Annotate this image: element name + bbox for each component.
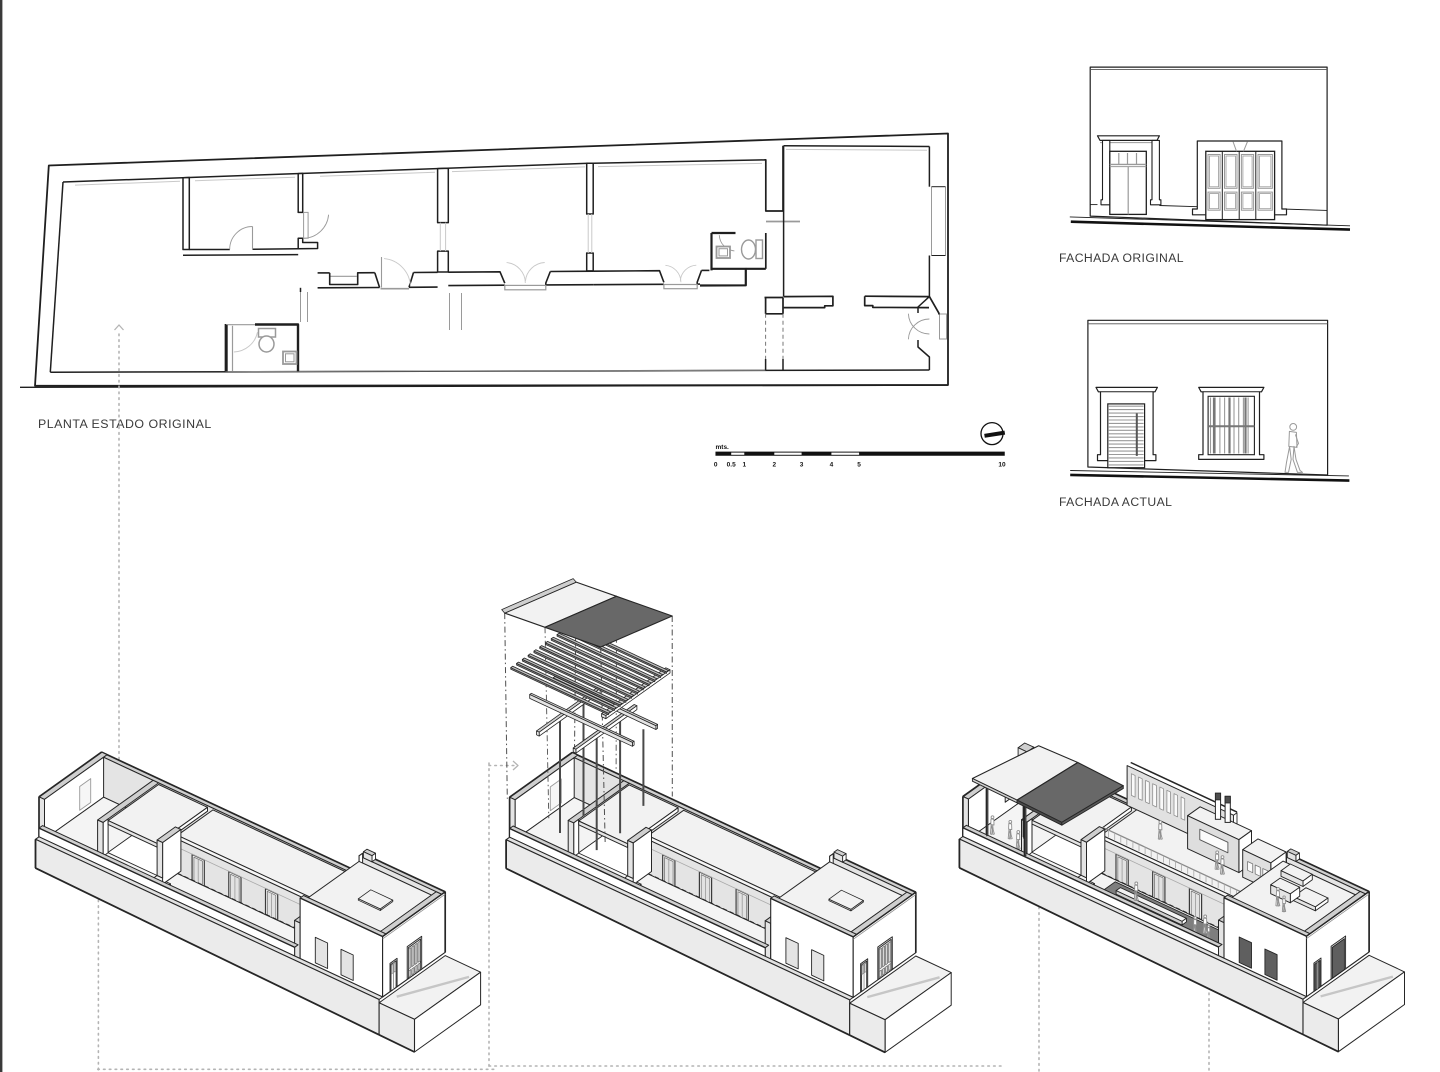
- svg-text:4: 4: [830, 462, 834, 469]
- svg-text:0: 0: [714, 462, 718, 469]
- svg-text:5: 5: [857, 462, 861, 469]
- svg-text:mts.: mts.: [716, 444, 730, 451]
- svg-text:3: 3: [800, 462, 804, 469]
- svg-text:10: 10: [998, 462, 1006, 469]
- svg-text:2: 2: [772, 462, 776, 469]
- svg-text:FACHADA ORIGINAL: FACHADA ORIGINAL: [1059, 251, 1184, 265]
- svg-text:PLANTA ESTADO ORIGINAL: PLANTA ESTADO ORIGINAL: [38, 417, 212, 431]
- svg-text:1: 1: [742, 462, 746, 469]
- svg-text:FACHADA ACTUAL: FACHADA ACTUAL: [1059, 495, 1172, 509]
- svg-text:0.5: 0.5: [727, 462, 736, 469]
